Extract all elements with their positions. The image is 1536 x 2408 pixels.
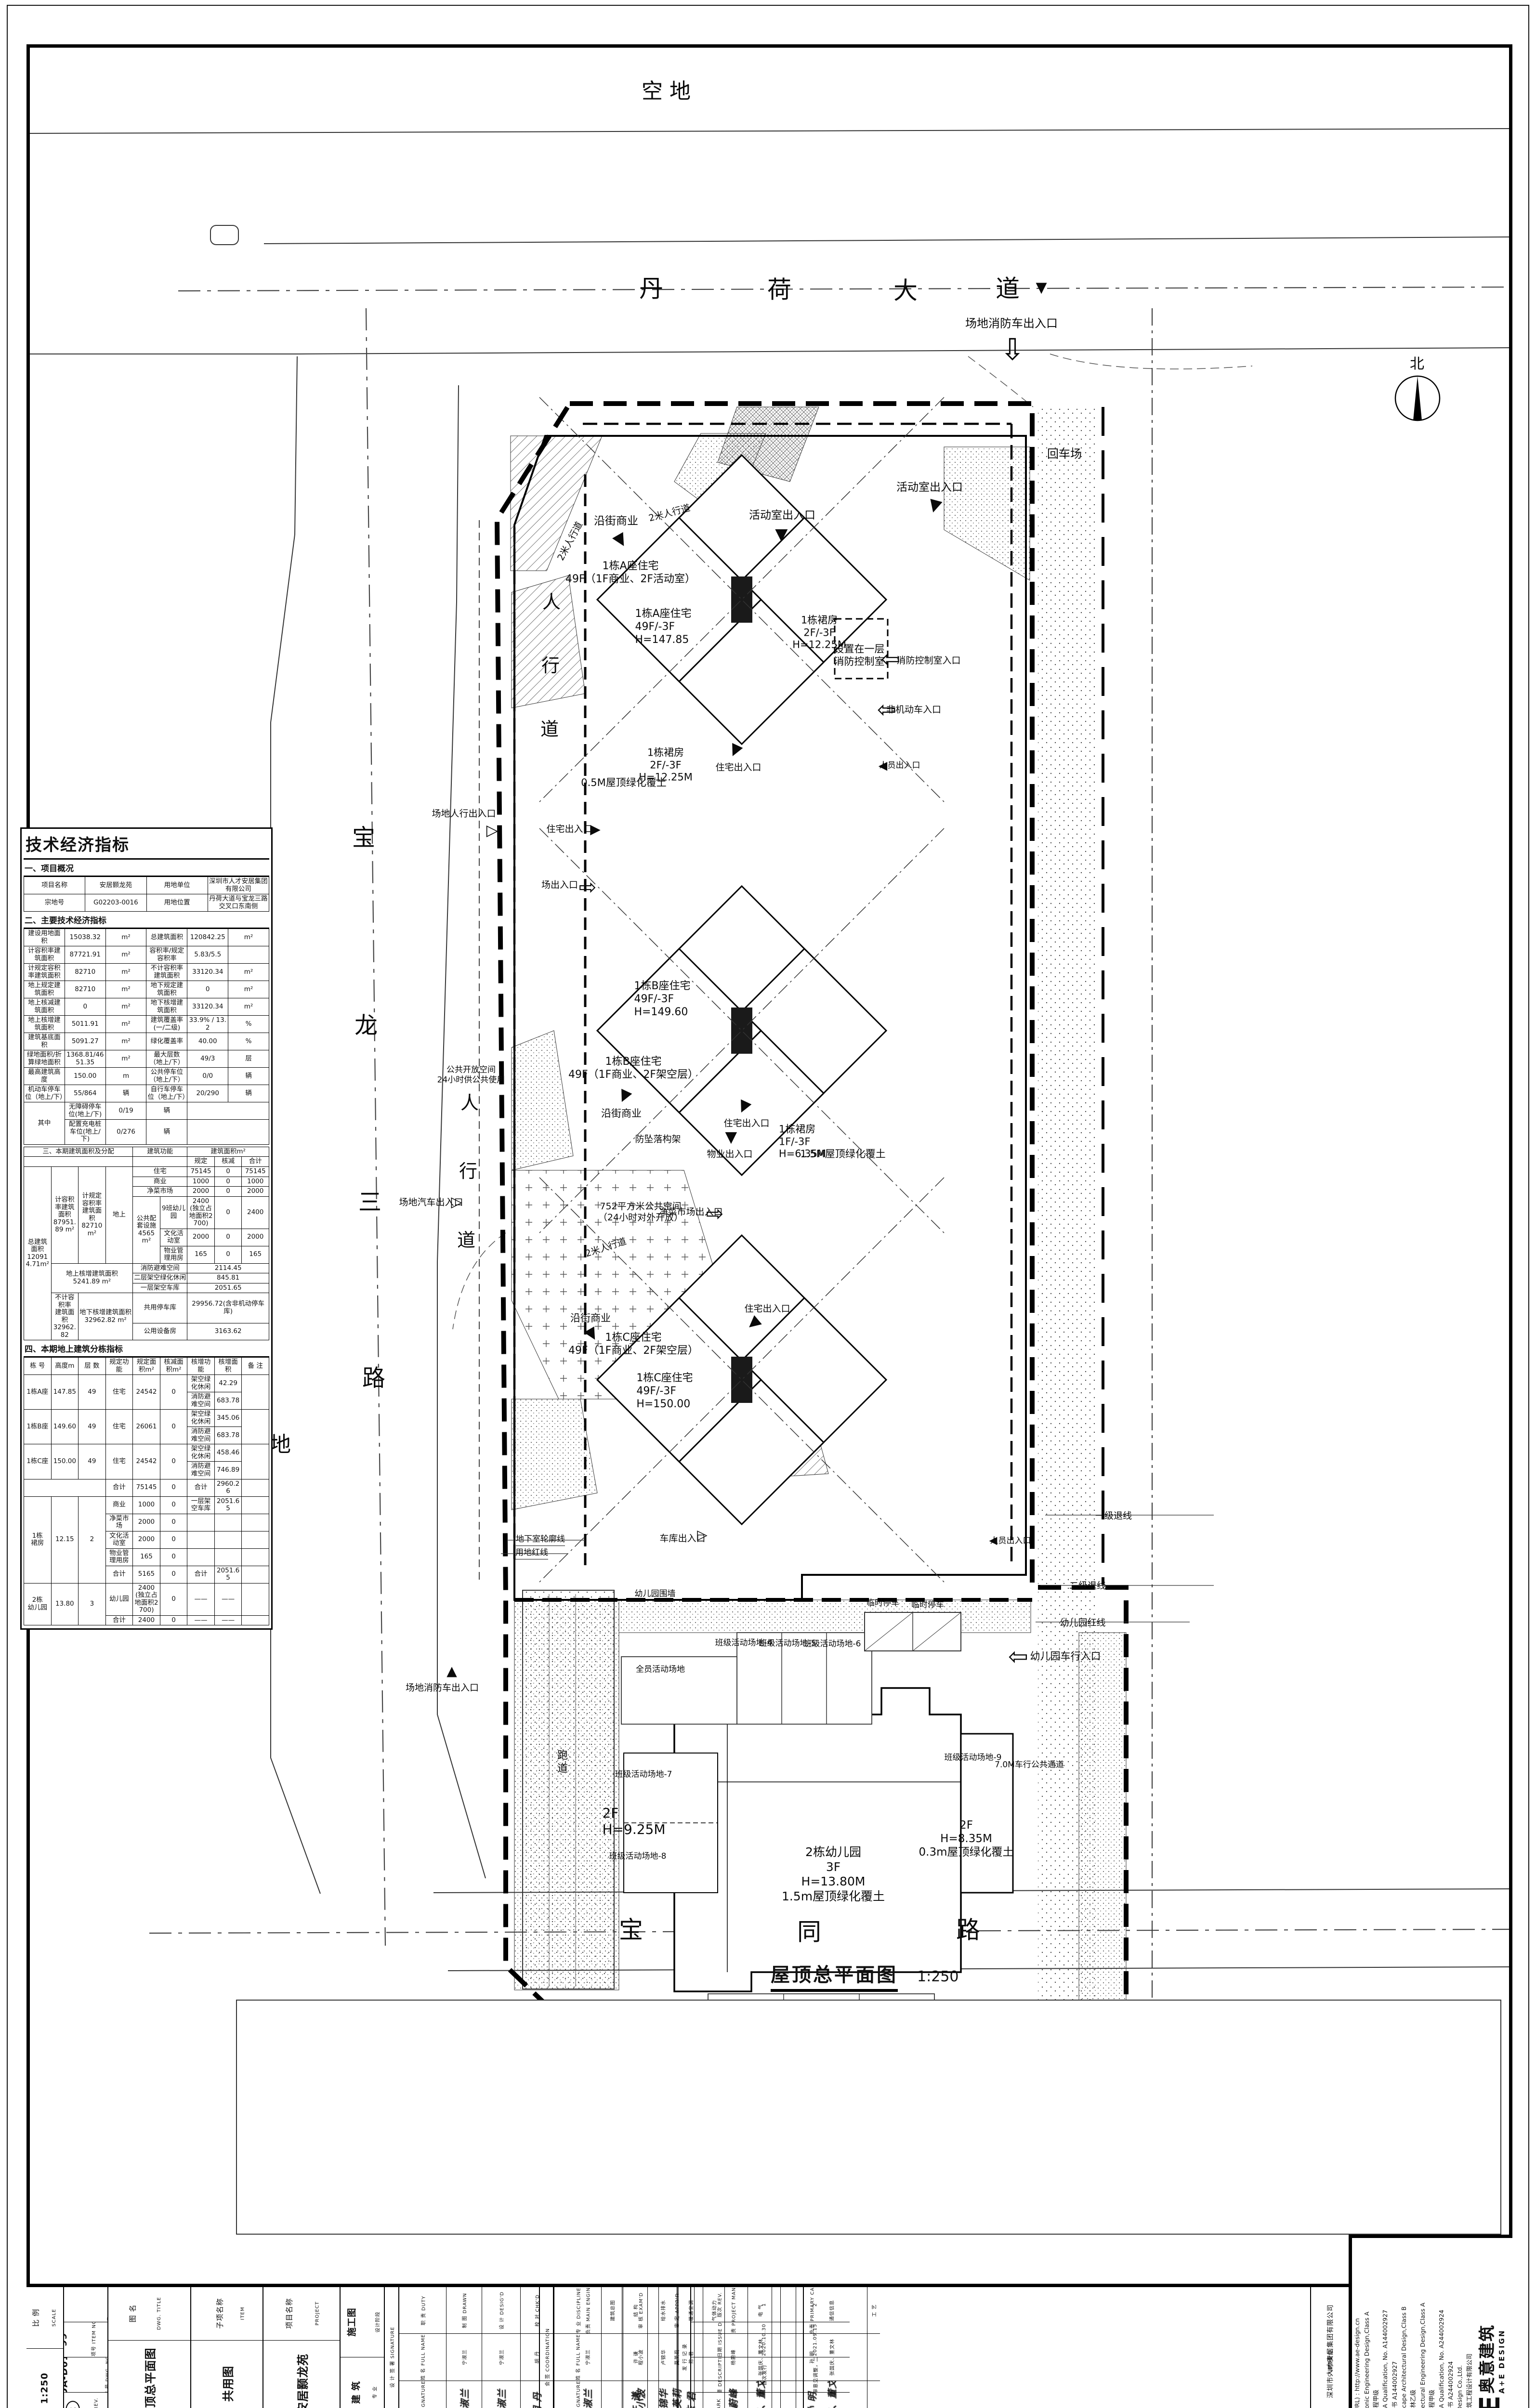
- table-cell: 0: [160, 1410, 187, 1444]
- vtable-cell-text: 胡 丹: [533, 2351, 540, 2363]
- company-info-line: Landscape Architectural Design,Class B: [1399, 2243, 1408, 2408]
- table-cell: m²: [228, 998, 269, 1016]
- table-cell: 0: [160, 1531, 187, 1548]
- section1-title: 一、项目概况: [24, 860, 269, 877]
- table-cell: [242, 1566, 269, 1583]
- table-cell: 0: [65, 998, 105, 1016]
- table-cell: 5091.27: [65, 1033, 105, 1050]
- plan-label: 住宅出入口: [723, 1118, 769, 1129]
- table-cell: 5165: [133, 1566, 160, 1583]
- plan-label: 防坠落构架: [635, 1134, 681, 1145]
- table-cell: [242, 1615, 269, 1625]
- dwg-title-column: 图 名 DWG. TITLE 屋顶总平面图: [108, 2287, 191, 2408]
- table-cell: 24542: [133, 1444, 160, 1479]
- table-cell: 2960.26: [214, 1479, 242, 1496]
- plan-label: 人: [542, 591, 561, 613]
- plan-label: 道: [996, 275, 1020, 304]
- table-cell: 辆: [228, 1085, 269, 1102]
- notes-area: [236, 2000, 1501, 2235]
- table-cell: 高度m: [51, 1358, 79, 1375]
- plan-label: 2F H=8.35M 0.3m屋顶绿化覆土: [919, 1819, 1014, 1859]
- project-label-cn: 项目名称: [284, 2298, 294, 2329]
- entrance-arrow-icon: ⇦: [1008, 1642, 1028, 1672]
- item-column: 子项名称 ITEM 共用图: [191, 2287, 263, 2408]
- table-cell: 核增功能: [187, 1358, 215, 1375]
- indicator-title: 技术经济指标: [24, 831, 269, 860]
- drawing-title: 屋顶总平面图: [771, 1959, 898, 1992]
- table-cell: 不计容积率建筑面积: [146, 964, 187, 981]
- table-cell: [187, 1120, 269, 1145]
- plan-label: 三: [358, 1189, 381, 1217]
- table-cell: 0: [160, 1479, 187, 1496]
- table-cell: [24, 1479, 106, 1496]
- table-cell: 2: [79, 1496, 106, 1583]
- table-cell: 建筑覆盖率(一/二级): [146, 1016, 187, 1033]
- table-cell: 147.85: [51, 1375, 79, 1410]
- table-cell: 845.81: [187, 1273, 269, 1283]
- discipline-label: 专 业: [370, 2386, 378, 2398]
- table-cell: 合计: [187, 1479, 215, 1496]
- table-cell: 1栋A座: [24, 1375, 52, 1410]
- scale-column: 比 例 SCALE 1:250: [26, 2287, 64, 2408]
- table-cell: 用地位置: [146, 894, 208, 912]
- plan-label: 临时停车: [866, 1598, 899, 1609]
- plan-label: 路: [362, 1364, 385, 1393]
- table-cell: 75145: [187, 1166, 215, 1177]
- plan-label: 7.0M车行公共通道: [995, 1760, 1064, 1770]
- table-cell: 2栋 幼儿园: [24, 1583, 52, 1625]
- dwg-title-label-en: DWG. TITLE: [156, 2297, 161, 2330]
- table-cell: 合计: [105, 1479, 133, 1496]
- table-cell: 地上规定建筑面积: [24, 981, 65, 998]
- table-cell: [242, 1444, 269, 1479]
- table-cell: 绿化覆盖率: [146, 1033, 187, 1050]
- entrance-arrow-icon: ⇨: [706, 1201, 724, 1227]
- vtable-cell-text: 签 署 SIGNATURE: [419, 2381, 426, 2408]
- table-cell: 2051.65: [187, 1283, 269, 1293]
- table-cell: 2400: [133, 1615, 160, 1625]
- table-cell: 683.78: [214, 1392, 242, 1410]
- table-cell: [187, 1102, 269, 1120]
- vtable-cell-text: 专 业 DISCIPLINE: [574, 2287, 581, 2333]
- table-cell: 2400 (独立占地面积2700): [133, 1583, 160, 1615]
- table-cell: G02203-0016: [85, 894, 146, 912]
- table-cell: m²: [228, 929, 269, 946]
- plan-label: 活动室出入口: [896, 481, 963, 494]
- table-cell: 49: [79, 1444, 106, 1479]
- drawing-title-block: 屋顶总平面图 1:250: [771, 1959, 958, 1992]
- rev-label: 版次 REV.: [92, 2397, 99, 2408]
- table-cell: 安居颢龙苑: [85, 877, 146, 894]
- plan-label: 班级活动场地-9: [945, 1753, 1002, 1763]
- table-cell: 20/290: [187, 1085, 228, 1102]
- vtable-cell-text: 宁淑兰: [494, 2389, 508, 2408]
- table-cell: 计容积率建筑面积 87951.89 m²: [51, 1166, 79, 1263]
- rev-value: 2: [66, 2401, 80, 2408]
- table-cell: 165: [133, 1548, 160, 1566]
- table-cell: 消防避难空间: [187, 1427, 215, 1444]
- table-cell: 商业: [133, 1177, 187, 1187]
- company-info-line: 奥意建筑工程设计有限公司: [1465, 2243, 1474, 2408]
- entrance-arrow-icon: ⇦: [877, 696, 896, 724]
- table-cell: 建筑基底面积: [24, 1033, 65, 1050]
- entrance-arrow-icon: ▷: [451, 1194, 462, 1212]
- table-cell: 最高建筑高度: [24, 1068, 65, 1085]
- project-column: 项目名称 PROJECT 安居颢龙苑: [263, 2287, 341, 2408]
- plan-label: 0.5M屋顶绿化覆土: [581, 777, 667, 789]
- table-cell: 13.80: [51, 1583, 79, 1625]
- table-cell: 0: [160, 1514, 187, 1531]
- plan-label: 大: [893, 276, 918, 306]
- table-cell: 150.00: [51, 1444, 79, 1479]
- table-cell: 0: [160, 1548, 187, 1566]
- project-value: 安居颢龙苑: [293, 2354, 310, 2408]
- table-cell: 层: [228, 1050, 269, 1068]
- table-cell: 层 数: [79, 1358, 106, 1375]
- table-cell: 1栋B座: [24, 1410, 52, 1444]
- table-cell: ——: [187, 1615, 215, 1625]
- entrance-arrow-icon: ▶: [590, 821, 601, 838]
- entrance-arrow-icon: ▲: [446, 1663, 457, 1679]
- table-cell: 住宅: [105, 1444, 133, 1479]
- stage-column: 施工图 设计阶段 建 筑 专 业: [341, 2287, 385, 2408]
- vtable-cell-text: 许 谦: [631, 2351, 639, 2363]
- table-cell: [133, 1157, 187, 1167]
- plan-label: 一级退线: [1095, 1510, 1132, 1521]
- table-cell: 不计容积率 建筑面积 32962.82: [51, 1293, 79, 1340]
- plan-label: 场地消防车出入口: [965, 316, 1058, 330]
- vtable-column: 版次 REV.发行日期 ISSUE DATE摘 要 DESCRIPTIONREM…: [691, 2287, 748, 2408]
- company-info-line: 电子工程甲级: [1371, 2243, 1380, 2408]
- table-cell: 15038.32: [65, 929, 105, 946]
- signature-title: 设 计 签 署 SIGNATURE: [388, 2327, 395, 2388]
- table-cell: 33120.34: [187, 998, 228, 1016]
- table-cell: 一层架空车库: [187, 1496, 215, 1514]
- table-cell: [242, 1583, 269, 1615]
- plan-label: 场出入口: [541, 879, 578, 890]
- plan-label: 1.5M屋顶绿化覆土: [800, 1148, 886, 1161]
- table-cell: 33.9% / 13.2: [187, 1016, 228, 1033]
- table-cell: 29956.72(含非机动停车库): [187, 1293, 269, 1323]
- company-info-line: 网址(URL) : http://www.ae-design.cn: [1352, 2243, 1362, 2408]
- table-cell: ——: [187, 1583, 215, 1615]
- table-cell: 地下核增建筑面积: [146, 998, 187, 1016]
- company-info-line: A+E Design Co.,Ltd.: [1455, 2243, 1464, 2408]
- table-cell: 深圳市人才安居集团有限公司: [208, 877, 269, 894]
- entrance-arrow-icon: ▶: [772, 529, 792, 542]
- vtable-cell-text: 发行日期 ISSUE DATE: [716, 2322, 723, 2357]
- table-cell: 0: [214, 1166, 242, 1177]
- entrance-arrow-icon: ◀: [989, 1535, 998, 1548]
- table-cell: 40.00: [187, 1033, 228, 1050]
- table-cell: 2051.65: [214, 1566, 242, 1583]
- table-cell: [24, 1157, 133, 1167]
- table-cell: 87721.91: [65, 946, 105, 964]
- table-cell: 地上: [105, 1166, 133, 1263]
- table-cell: 规定功能: [105, 1358, 133, 1375]
- plan-label: 龙: [354, 1012, 378, 1040]
- plan-label: 沿街商业: [601, 1108, 642, 1120]
- vtable-cell-text: REMARK: [717, 2398, 722, 2408]
- table-cell: 自行车停车位（地上/下）: [146, 1085, 187, 1102]
- table-cell: 42.29: [214, 1375, 242, 1392]
- table-cell: 0: [187, 981, 228, 998]
- table-cell: 住宅: [133, 1166, 187, 1177]
- plan-label: 丹: [639, 275, 663, 304]
- vtable-cell-text: 签 署 SIGNATURE: [574, 2381, 581, 2408]
- table-cell: 共用停车库: [133, 1293, 187, 1323]
- dwg-title-label-cn: 图 名: [127, 2304, 137, 2323]
- table-cell: 1000: [242, 1177, 269, 1187]
- table-cell: 120842.25: [187, 929, 228, 946]
- vtable-cell-text: 制 图 DRAWN: [460, 2293, 468, 2328]
- project-no-label: 工程号 PROJECT NO.: [105, 2287, 107, 2322]
- entrance-arrow-icon: ▶: [722, 1132, 741, 1144]
- table-cell: 75145: [242, 1166, 269, 1177]
- table-cell: 0: [214, 1246, 242, 1263]
- logo-cn: 奥意建筑: [1474, 2324, 1497, 2394]
- plan-label: 设置在一层 消防控制室: [834, 643, 885, 667]
- table-cell: 地上核增建筑面积 5241.89 m²: [51, 1263, 133, 1293]
- plan-label: 行: [541, 654, 560, 677]
- table-cell: 0: [160, 1583, 187, 1615]
- vtable-column: 制 图 DRAWN宁淑兰宁淑兰: [446, 2287, 482, 2408]
- section4-title: 四、本期地上建筑分栋指标: [24, 1340, 269, 1357]
- table-cell: [242, 1410, 269, 1444]
- entrance-arrow-icon: ▷: [697, 1527, 708, 1543]
- plan-label: 道: [540, 718, 559, 740]
- plan-label: 班级活动场地-6: [804, 1639, 861, 1649]
- plan-label: 沿街商业: [594, 514, 638, 528]
- table-cell: 合计: [187, 1566, 215, 1583]
- table-cell: 746.89: [214, 1462, 242, 1479]
- table-cell: %: [228, 1016, 269, 1033]
- discipline-value: 建 筑: [349, 2381, 362, 2404]
- plan-label: 住宅出入口: [744, 1303, 790, 1314]
- table-cell: 二层架空绿化休闲: [133, 1273, 187, 1283]
- plan-label: 同: [797, 1918, 821, 1947]
- table-cell: ——: [214, 1615, 242, 1625]
- table-cell: 公用设备房: [133, 1323, 187, 1340]
- table-cell: 0: [214, 1196, 242, 1229]
- plan-label: 二级退线: [1069, 1580, 1106, 1591]
- table-cell: 建设用地面积: [24, 929, 65, 946]
- company-info-line: Class A Qualification, No. A144002927: [1380, 2243, 1390, 2408]
- table-cell: 文化活动室: [160, 1229, 187, 1246]
- table-cell: 辆: [228, 1068, 269, 1085]
- table-cell: [228, 946, 269, 964]
- table-cell: 公共停车位（地上/下）: [146, 1068, 187, 1085]
- table-cell: 0: [214, 1177, 242, 1187]
- table-cell: 地下规定建筑面积: [146, 981, 187, 998]
- scale-value: 1:250: [39, 2372, 50, 2404]
- table-cell: 核减: [214, 1157, 242, 1167]
- table-cell: m²: [105, 929, 146, 946]
- plan-label: 公共开放空间 24小时供公共使用: [437, 1065, 505, 1085]
- vtable-cell-text: 摘 要 DESCRIPTION: [716, 2357, 723, 2393]
- table-cell: 165: [242, 1246, 269, 1263]
- table-cell: 备 注: [242, 1358, 269, 1375]
- vtable-cell-text: 姓 名 FULL NAME: [574, 2334, 581, 2380]
- table-cell: m²: [105, 946, 146, 964]
- vtable-cell-text: 姓 名 FULL NAME: [419, 2334, 426, 2380]
- vtable-cell-text: 1: [761, 2303, 767, 2306]
- table-cell: 幼儿园: [105, 1583, 133, 1615]
- vtable-cell-text: 宁淑兰: [498, 2349, 505, 2365]
- plan-label: 人: [460, 1092, 479, 1114]
- client-block: 深圳市人才安居集团有限公司 建设单位: CLIENT:: [1310, 2284, 1349, 2408]
- table-cell: 2000: [133, 1531, 160, 1548]
- stage-label: 设计阶段: [374, 2312, 381, 2333]
- plan-label: 空地: [642, 79, 697, 105]
- vtable-cell-text: 设 计 DESIG'D: [498, 2291, 505, 2329]
- dwg-no-value: DA-D01: [64, 2357, 69, 2393]
- project-overview-table: 项目名称安居颢龙苑用地单位深圳市人才安居集团有限公司宗地号G02203-0016…: [24, 877, 269, 912]
- vtable-cell-text: 2020.10.30: [761, 2323, 767, 2356]
- aeplus-logo-icon: Æ: [1477, 2398, 1502, 2408]
- plan-label: 消防控制室入口: [896, 655, 960, 666]
- table-cell: 3: [79, 1583, 106, 1625]
- table-cell: 5.83/5.5: [187, 946, 228, 964]
- table-cell: 75145: [133, 1479, 160, 1496]
- table-cell: ——: [214, 1583, 242, 1615]
- table-cell: 2000: [242, 1229, 269, 1246]
- vtable-cell-text: 建筑总图: [608, 2300, 616, 2321]
- table-cell: 架空绿化休闲: [187, 1444, 215, 1462]
- item-value: 共用图: [219, 2366, 236, 2402]
- table-cell: 物业管理用房: [160, 1246, 187, 1263]
- company-info-line: Class A Qualification, No. A244002924: [1437, 2243, 1446, 2408]
- table-cell: 住宅: [105, 1375, 133, 1410]
- company-info-line: 资质证书 A144002927: [1390, 2243, 1399, 2408]
- table-cell: [242, 1496, 269, 1514]
- plan-label: 住宅出入口: [715, 762, 761, 773]
- table-cell: 458.46: [214, 1444, 242, 1462]
- vtable-column: 结 构许 谦许 谦: [623, 2287, 648, 2408]
- plan-label: 用地红线: [515, 1548, 548, 1559]
- plan-label: 跑 道: [557, 1750, 568, 1776]
- table-cell: 165: [187, 1246, 215, 1263]
- table-cell: m²: [228, 964, 269, 981]
- item-label-en: ITEM: [240, 2307, 246, 2320]
- table-cell: 栋 号: [24, 1358, 52, 1375]
- table-cell: 1368.81/4651.35: [65, 1050, 105, 1068]
- table-cell: 绿地面积/折算绿地面积: [24, 1050, 65, 1068]
- table-cell: 计容积率建筑面积: [24, 946, 65, 964]
- title-strip: 比 例 SCALE 1:250 20027-2 工程号 PROJECT NO. …: [26, 2284, 1349, 2408]
- table-cell: 项目名称: [24, 877, 85, 894]
- table-cell: 55/864: [65, 1085, 105, 1102]
- table-cell: 2000: [242, 1187, 269, 1197]
- table-cell: 核减面积m²: [160, 1358, 187, 1375]
- vtable-cell-text: 宁淑兰: [457, 2389, 471, 2408]
- vtable-column: 12020.10.30首次发行: [748, 2287, 781, 2408]
- entrance-arrow-icon: ▼: [1036, 279, 1047, 297]
- company-info-line: 风景园林乙级: [1408, 2243, 1418, 2408]
- plan-label: 1栋B座住宅 49F/-3F H=149.60: [634, 980, 690, 1019]
- table-cell: 公共配套设施 4565 m²: [133, 1196, 160, 1263]
- company-info-line: 建筑工程甲级: [1427, 2243, 1436, 2408]
- plan-label: 幼儿园红线: [1060, 1617, 1105, 1628]
- table-cell: 2051.65: [214, 1496, 242, 1514]
- table-cell: 总建筑面积: [146, 929, 187, 946]
- table-cell: 1000: [187, 1177, 215, 1187]
- table-cell: 0: [160, 1444, 187, 1479]
- table-cell: 0: [214, 1229, 242, 1246]
- issue-section: 发 行 记 录 版次 REV.发行日期 ISSUE DATE摘 要 DESCRI…: [678, 2287, 804, 2408]
- table-cell: 0: [214, 1187, 242, 1197]
- table-cell: 计规定容积率建筑面积: [24, 964, 65, 981]
- vtable-cell-text: 给水排水: [659, 2300, 667, 2321]
- table-cell: 其中: [24, 1102, 65, 1145]
- plan-label: 住宅出入口: [546, 824, 592, 835]
- vtable-column: 设 计 DESIG'D宁淑兰宁淑兰: [482, 2287, 521, 2408]
- table-cell: [214, 1514, 242, 1531]
- table-cell: m: [105, 1068, 146, 1085]
- plan-label: 道: [457, 1229, 475, 1251]
- drawing-scale: 1:250: [917, 1968, 958, 1985]
- table-cell: 核增面积: [214, 1358, 242, 1375]
- table-cell: 辆: [146, 1102, 187, 1120]
- table-cell: [242, 1531, 269, 1548]
- coordination-section: 会 签 COORDINATION 专 业 DISCIPLINE姓 名 FULL …: [540, 2287, 678, 2408]
- table-cell: 49: [79, 1410, 106, 1444]
- table-cell: 2000: [187, 1187, 215, 1197]
- spare-column: [804, 2287, 1349, 2408]
- table-cell: 物业管理用房: [105, 1548, 133, 1566]
- table-cell: 2400 (独立占地面积2700): [187, 1196, 215, 1229]
- vtable-cell-text: 宁淑兰: [460, 2349, 468, 2365]
- table-cell: 净菜市场: [133, 1187, 187, 1197]
- table-cell: 消防避难空间: [133, 1263, 187, 1273]
- numbers-column: 20027-2 工程号 PROJECT NO. 99 子项号 ITEM NO. …: [64, 2287, 108, 2408]
- plan-label: 沿街商业: [570, 1312, 611, 1325]
- table-cell: [187, 1531, 215, 1548]
- signature-section: 设 计 签 署 SIGNATURE 职 责 DUTY姓 名 FULL NAME签…: [385, 2287, 540, 2408]
- section2-title: 二、主要技术经济指标: [24, 912, 269, 929]
- vtable-column: 职 责 DUTY姓 名 FULL NAME签 署 SIGNATURE: [399, 2287, 446, 2408]
- table-cell: [242, 1548, 269, 1566]
- table-cell: m²: [105, 964, 146, 981]
- plan-label: 活动室出入口: [749, 509, 815, 522]
- table-cell: 0: [160, 1615, 187, 1625]
- table-cell: 规定面积m²: [133, 1358, 160, 1375]
- table-cell: 82710: [65, 964, 105, 981]
- vtable-column: 建筑总图: [602, 2287, 623, 2408]
- plan-label: 回车场: [1047, 447, 1082, 461]
- table-cell: 消防避难空间: [187, 1462, 215, 1479]
- vtable-cell-text: 首次发行: [761, 2364, 768, 2385]
- table-cell: 三、本期建筑面积及分配: [24, 1147, 133, 1157]
- table-cell: 架空绿化休闲: [187, 1375, 215, 1392]
- table-cell: 1栋 裙房: [24, 1496, 52, 1583]
- item-no-value: 99: [64, 2333, 69, 2346]
- table-cell: 地上核增建筑面积: [24, 1016, 65, 1033]
- table-cell: 2000: [187, 1229, 215, 1246]
- table-cell: 2000: [133, 1514, 160, 1531]
- table-cell: 1000: [133, 1496, 160, 1514]
- plan-label: 2F H=9.25M: [602, 1805, 665, 1838]
- table-cell: 合计: [105, 1615, 133, 1625]
- per-building-table: 栋 号高度m层 数规定功能规定面积m²核减面积m²核增功能核增面积备 注1栋A座…: [24, 1357, 269, 1625]
- plan-label: 宝: [352, 824, 375, 852]
- plan-label: 路: [956, 1916, 980, 1945]
- company-logo: Æ 奥意建筑 A+E DESIGN: [1474, 2243, 1510, 2408]
- table-cell: %: [228, 1033, 269, 1050]
- vtable-cell-text: 版次 REV.: [716, 2292, 723, 2317]
- project-label-en: PROJECT: [315, 2302, 320, 2326]
- table-cell: 最大层数（地上/下）: [146, 1050, 187, 1068]
